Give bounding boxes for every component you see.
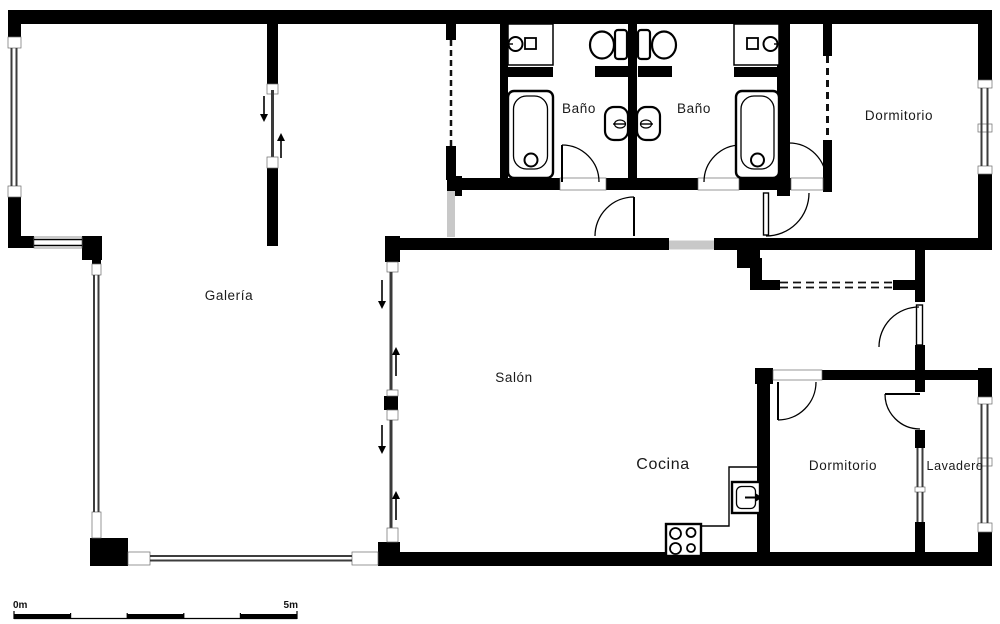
wall (267, 24, 278, 84)
wall (714, 238, 992, 250)
scale-segment (240, 614, 297, 619)
door-bedroom-bottom (778, 382, 816, 420)
window-jamb (978, 80, 992, 88)
floor-plan: Baño Baño Dormitorio Galería Salón Cocin… (0, 0, 1000, 624)
window-jamb (8, 37, 21, 48)
doorway (791, 178, 823, 190)
washbasin-icon (734, 24, 779, 65)
fixtures (508, 24, 779, 556)
wall (915, 522, 925, 566)
window-jamb (915, 487, 925, 492)
sliding-partitions (260, 84, 400, 542)
wall (8, 10, 21, 37)
wall (978, 24, 992, 80)
label-laundry: Lavadero (927, 459, 984, 473)
wall (915, 345, 925, 372)
door-corridor-2 (764, 193, 810, 236)
wall (90, 538, 128, 566)
door-laundry (885, 394, 920, 429)
bathtub-icon (508, 91, 553, 178)
partition-jamb (387, 528, 398, 542)
door-bathroom-left (562, 145, 599, 182)
wall (384, 396, 398, 410)
partition-jamb (387, 390, 398, 396)
wall (750, 280, 780, 290)
stove-icon (666, 524, 701, 556)
window-jamb (978, 397, 992, 404)
wall (8, 236, 34, 248)
window-jamb (978, 124, 992, 132)
window-step (34, 237, 82, 248)
partition-jamb (387, 410, 398, 420)
kitchen-sink-icon (732, 482, 762, 513)
window-jamb (352, 552, 378, 565)
wall (267, 168, 278, 246)
scale-start-label: 0m (13, 600, 28, 611)
opening-living-corridor (669, 241, 714, 250)
opening-hall-corridor (447, 191, 455, 237)
wall (915, 250, 925, 302)
label-bathroom-right: Baño (677, 101, 711, 116)
wall (734, 67, 780, 77)
window-jamb (8, 186, 21, 197)
door-corridor-1 (595, 197, 634, 236)
scale-segment (127, 614, 184, 619)
wall (978, 368, 992, 397)
scale-bar: 0m 5m (13, 600, 298, 619)
room-labels: Baño Baño Dormitorio Galería Salón Cocin… (205, 101, 984, 473)
scale-end-label: 5m (284, 600, 299, 611)
wall (606, 178, 698, 190)
wall (385, 238, 669, 250)
partition-jamb (387, 262, 398, 272)
wall (446, 146, 456, 180)
bathtub-icon (736, 91, 779, 178)
wall (92, 248, 101, 264)
wall (978, 174, 992, 250)
walls (8, 10, 992, 566)
partition-jamb (267, 157, 278, 168)
wall (822, 370, 925, 380)
bidet-icon (637, 107, 660, 140)
washbasin-icon (508, 24, 553, 65)
toilet-icon (590, 30, 627, 59)
sliding-door-arrow (260, 96, 400, 520)
window-jamb (978, 166, 992, 174)
door-terrace (879, 305, 923, 347)
label-bathroom-left: Baño (562, 101, 596, 116)
wall (915, 430, 925, 448)
label-bedroom-bottom: Dormitorio (809, 458, 877, 473)
label-kitchen: Cocina (636, 456, 689, 473)
wall (978, 532, 992, 566)
wall (446, 24, 456, 40)
wall (628, 24, 637, 178)
doorway (773, 370, 822, 380)
bidet-icon (605, 107, 628, 140)
scale-segment (14, 614, 71, 619)
label-living-room: Salón (495, 370, 533, 385)
wall (462, 178, 560, 190)
wall (823, 24, 832, 56)
label-gallery: Galería (205, 288, 253, 303)
wall (507, 67, 553, 77)
window-jamb (128, 552, 150, 565)
wall (8, 10, 992, 24)
wall (638, 66, 672, 77)
window-jamb (92, 264, 101, 275)
wall (823, 140, 832, 192)
wall (757, 370, 770, 566)
label-bedroom-top: Dormitorio (865, 108, 933, 123)
wall (915, 380, 925, 392)
window-jamb (92, 512, 101, 538)
toilet-icon (638, 30, 676, 59)
window-jamb (978, 523, 992, 532)
door-bedroom-top (789, 143, 826, 180)
wall (595, 66, 629, 77)
